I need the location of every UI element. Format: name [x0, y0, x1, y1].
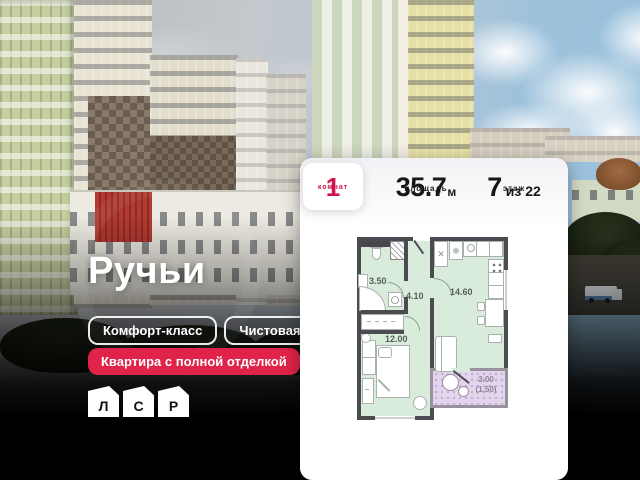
balcony-area-value: 3.00 — [469, 375, 503, 385]
bathroom-area-label: 3.50 — [369, 276, 387, 286]
hallway-area-label: 4.10 — [406, 291, 424, 301]
floor-label: этаж — [503, 184, 525, 193]
wardrobe — [362, 340, 376, 375]
logo-letter: Л — [99, 395, 109, 417]
logo-letter: С — [133, 395, 143, 417]
dining-table — [485, 299, 504, 327]
washing-machine — [388, 292, 402, 307]
listing-card: 1 комнат 35.7 м площадь 7 из 22 этаж — [300, 158, 568, 480]
sofa — [435, 336, 457, 372]
wall — [404, 241, 408, 281]
shaft — [361, 241, 390, 247]
chair — [477, 316, 485, 325]
chair — [477, 302, 485, 311]
area-label: площадь — [405, 184, 448, 193]
kitchen-sink — [467, 244, 475, 252]
logo-cube-r: Р — [158, 386, 189, 417]
tags-row: Комфорт-класс Чистовая — [88, 316, 316, 345]
balcony-area-secondary: (1.50) — [469, 385, 503, 395]
closet-shelf — [367, 321, 397, 322]
area-stat: 35.7 м площадь — [370, 165, 482, 209]
kitchen-area-label: 14.60 — [450, 287, 473, 297]
balcony-chair-large — [442, 374, 459, 391]
pouf — [413, 396, 427, 410]
rooms-stat-badge: 1 комнат — [303, 163, 363, 210]
fridge-icon: ❄ — [450, 247, 462, 256]
bedroom-window — [375, 416, 415, 420]
stove-burners — [491, 262, 502, 273]
floor-plan: ✕ ❄ 3.50 4.10 14.60 — [357, 237, 508, 420]
area-unit: м — [447, 185, 456, 199]
bedroom-area-label: 12.00 — [385, 334, 408, 344]
listing-image: Ручьи Комфорт-класс Чистовая Квартира с … — [0, 0, 640, 480]
balcony-area-label: 3.00 (1.50) — [469, 375, 503, 395]
project-title: Ручьи — [88, 250, 206, 293]
logo-cube-l: Л — [88, 386, 119, 417]
toilet-bowl — [372, 248, 381, 260]
fridge: ❄ — [449, 241, 463, 260]
developer-logo: Л С Р — [88, 386, 189, 417]
floor-stat: 7 из 22 этаж — [472, 165, 556, 209]
vent-box: ✕ — [434, 241, 448, 267]
tv-stand — [488, 334, 502, 343]
rooms-label: комнат — [318, 184, 348, 191]
logo-cube-s: С — [123, 386, 154, 417]
pillow — [378, 347, 392, 358]
bedside-shelf — [365, 389, 371, 390]
mirror — [361, 333, 371, 343]
logo-letter: Р — [169, 395, 178, 417]
wall — [361, 310, 404, 314]
bedside-unit — [362, 378, 374, 404]
vent-shaft — [390, 241, 405, 260]
door-opening — [430, 278, 434, 298]
floor-value: 7 — [487, 174, 502, 201]
kitchen-window — [504, 270, 508, 310]
tag-comfort-class: Комфорт-класс — [88, 316, 217, 345]
closet — [361, 314, 404, 330]
fan-icon: ✕ — [435, 250, 447, 259]
balcony-chair-small — [458, 386, 469, 397]
highlight-badge: Квартира с полной отделкой — [88, 348, 300, 375]
